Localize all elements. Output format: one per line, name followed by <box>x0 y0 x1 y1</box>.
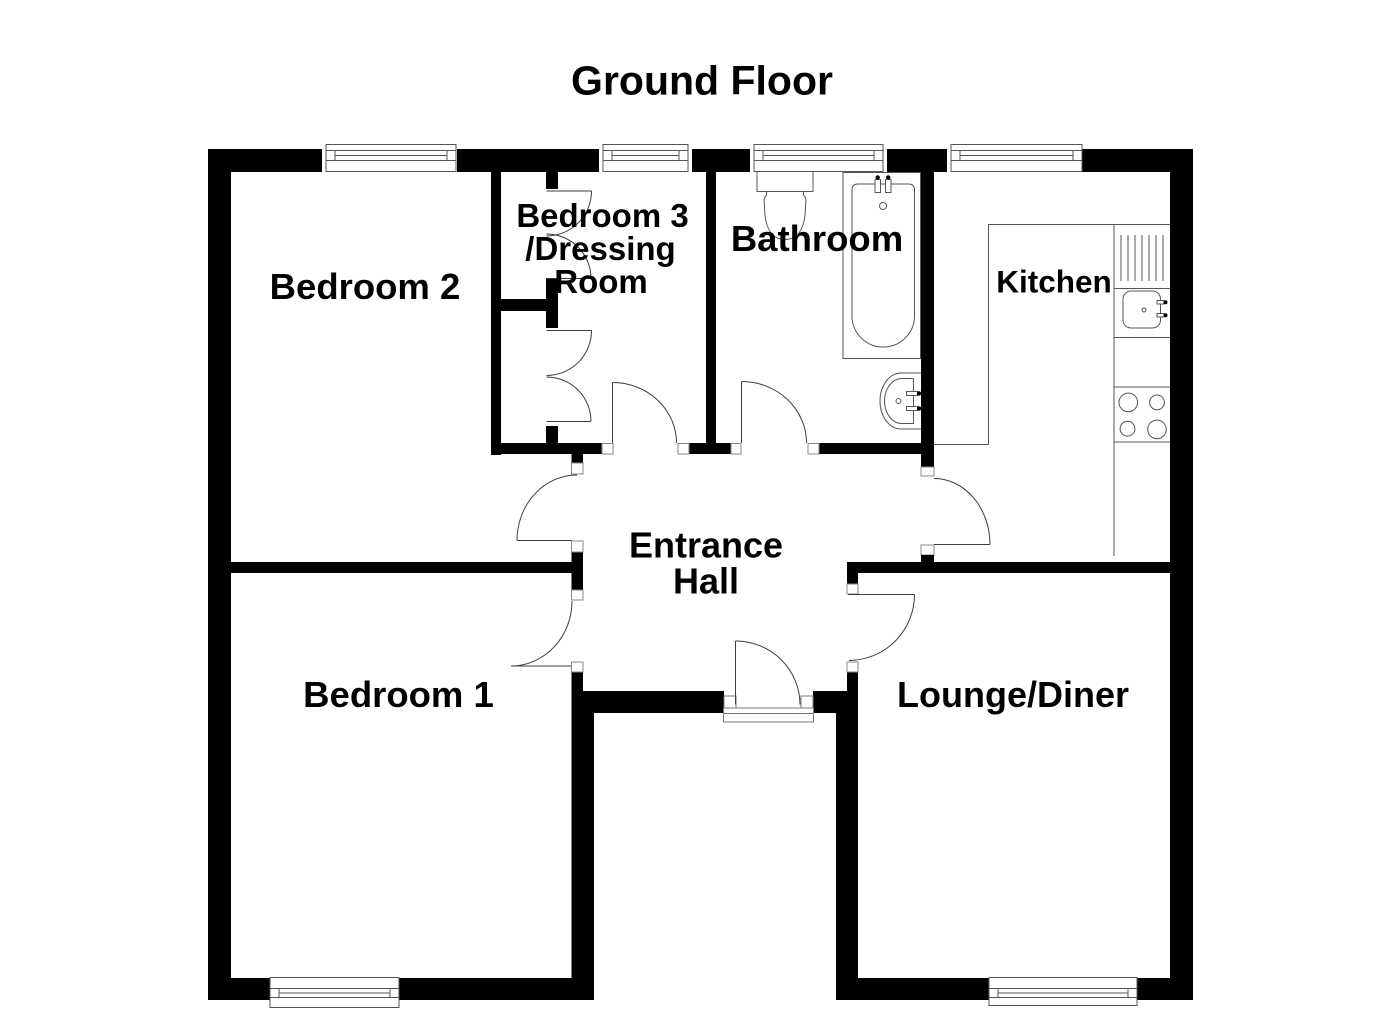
svg-text:Bedroom 3: Bedroom 3 <box>516 197 688 234</box>
svg-text:Hall: Hall <box>673 561 739 602</box>
svg-text:Room: Room <box>554 263 648 300</box>
svg-text:Ground Floor: Ground Floor <box>571 58 833 104</box>
svg-text:/Dressing: /Dressing <box>525 230 675 267</box>
svg-text:Lounge/Diner: Lounge/Diner <box>897 674 1129 715</box>
svg-text:Bathroom: Bathroom <box>731 218 903 259</box>
svg-text:Kitchen: Kitchen <box>996 264 1112 300</box>
svg-text:Bedroom 2: Bedroom 2 <box>270 266 461 307</box>
svg-text:Entrance: Entrance <box>629 525 783 566</box>
svg-text:Bedroom 1: Bedroom 1 <box>303 674 494 715</box>
